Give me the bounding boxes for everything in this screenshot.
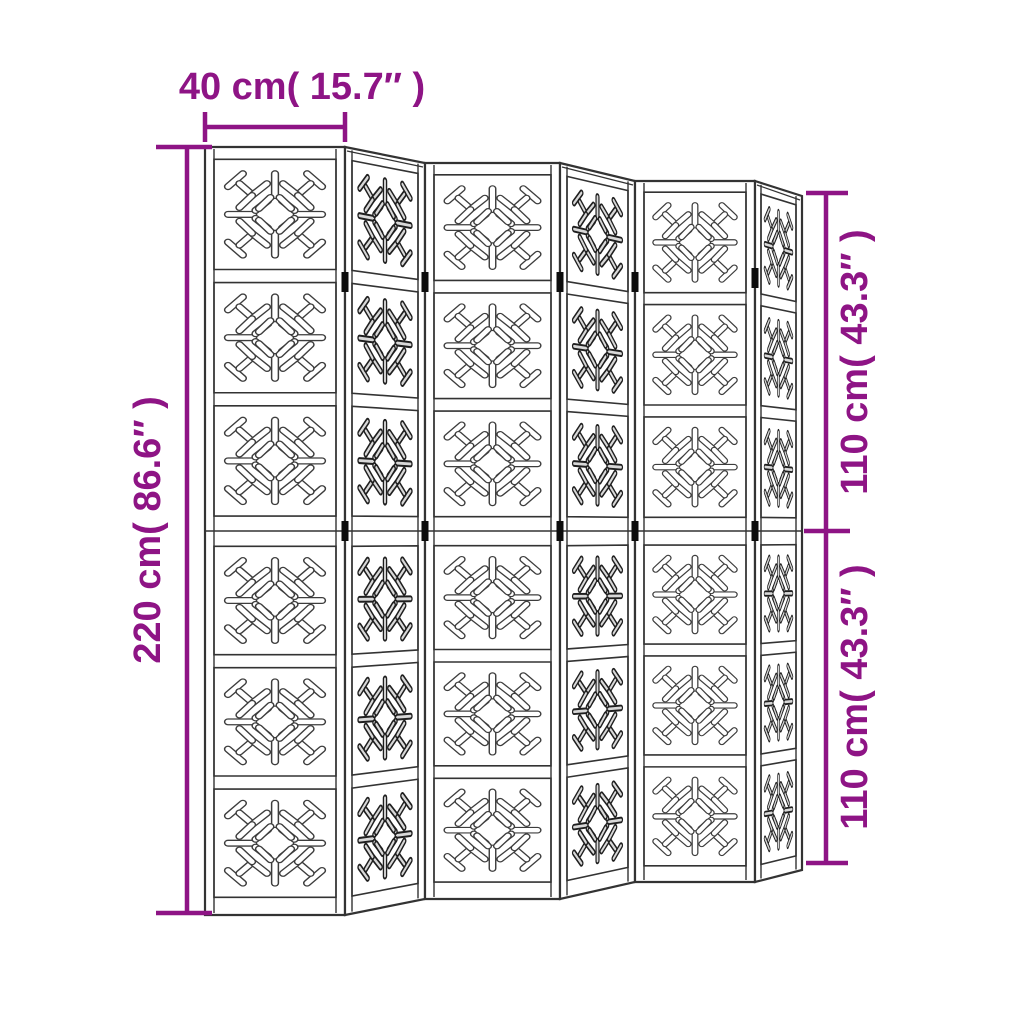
dimension-left: 220 cm( 86.6″ ) (127, 147, 212, 913)
hinge (752, 521, 759, 541)
panel-6 (755, 181, 802, 882)
panel-2 (345, 147, 425, 915)
dimension-diagram: 40 cm( 15.7″ )220 cm( 86.6″ )110 cm( 43.… (0, 0, 1024, 1024)
dimension-top: 40 cm( 15.7″ ) (179, 66, 425, 142)
panel-1 (205, 147, 345, 915)
hinge (632, 521, 639, 541)
hinge (342, 521, 349, 541)
hinge (557, 272, 564, 292)
panel-4 (560, 163, 635, 899)
hinge (752, 268, 759, 288)
hinge (422, 521, 429, 541)
dimension-label-right-bottom: 110 cm( 43.3″ ) (834, 564, 876, 829)
hinge (557, 521, 564, 541)
dimension-right-top: 110 cm( 43.3″ ) (804, 193, 876, 531)
hinge (342, 272, 349, 292)
dimension-label-left: 220 cm( 86.6″ ) (127, 396, 169, 663)
panel-3 (425, 163, 560, 899)
folding-screen (205, 147, 802, 915)
dimension-label-top: 40 cm( 15.7″ ) (179, 66, 425, 108)
panel-5 (635, 181, 755, 882)
hinge (632, 272, 639, 292)
dimension-label-right-top: 110 cm( 43.3″ ) (834, 229, 876, 494)
dimension-right-bottom: 110 cm( 43.3″ ) (806, 531, 876, 863)
room-divider-diagram-svg: 40 cm( 15.7″ )220 cm( 86.6″ )110 cm( 43.… (0, 0, 1024, 1024)
hinge (422, 272, 429, 292)
